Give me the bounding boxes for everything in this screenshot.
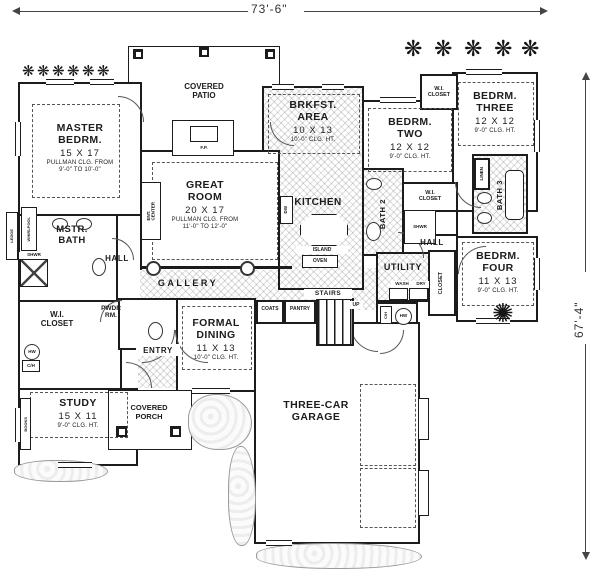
floor-plan: F.P. MASTER BEDRM. 15 X 17 PULLMAN CLG. … bbox=[0, 0, 600, 579]
shrub-icon: ❋ bbox=[521, 38, 539, 60]
shrub-icon: ❋ bbox=[97, 64, 110, 79]
stairs-label: STAIRS bbox=[304, 289, 352, 299]
window bbox=[266, 540, 292, 546]
rock-bed bbox=[256, 543, 422, 569]
water-heater-closet: HW bbox=[24, 344, 40, 360]
dim-width-label: 73'-6" bbox=[251, 2, 288, 16]
dim-line-top bbox=[304, 11, 540, 12]
room-wi-closet-bed2 bbox=[402, 182, 458, 212]
ceiling-line-bed3 bbox=[458, 82, 534, 146]
window bbox=[322, 84, 344, 90]
shower-label-master: SHWR bbox=[19, 252, 49, 259]
dryer-label: DRY bbox=[413, 281, 429, 288]
column bbox=[146, 261, 161, 276]
island-label: ISLAND bbox=[296, 246, 348, 254]
shrub-icon: ❋ bbox=[37, 64, 50, 79]
dryer bbox=[409, 288, 428, 300]
flower-icon: ✺ bbox=[492, 300, 514, 326]
window bbox=[380, 97, 416, 103]
column bbox=[240, 261, 255, 276]
patio-post bbox=[199, 47, 209, 57]
garage-door-bay bbox=[360, 384, 416, 466]
patio-post bbox=[133, 49, 143, 59]
window bbox=[15, 408, 21, 442]
colonnade-line bbox=[140, 266, 292, 269]
toilet bbox=[366, 222, 381, 241]
bookshelf: BOOKS bbox=[20, 398, 31, 450]
plant-ledge: LEDGE bbox=[6, 212, 18, 260]
shrub-icon: ❋ bbox=[52, 64, 65, 79]
dim-line-right bbox=[585, 80, 586, 272]
porch-post bbox=[116, 426, 127, 437]
dim-arrow-up-icon bbox=[582, 72, 590, 80]
sink bbox=[477, 192, 492, 204]
ceiling-line-study bbox=[30, 392, 128, 438]
shrub-icon: ❋ bbox=[82, 64, 95, 79]
sink bbox=[52, 218, 68, 230]
room-closet-bed4 bbox=[428, 250, 456, 316]
window bbox=[466, 69, 502, 75]
shrub-icon: ❋ bbox=[22, 64, 35, 79]
dim-line-top bbox=[20, 11, 248, 12]
kitchen-island bbox=[300, 214, 348, 246]
dim-arrow-down-icon bbox=[582, 552, 590, 560]
shrub-icon: ❋ bbox=[67, 64, 80, 79]
water-heater-utility: HW bbox=[395, 308, 412, 325]
ceiling-line-great-room bbox=[152, 162, 278, 260]
window bbox=[534, 258, 540, 290]
shrub-icon: ❋ bbox=[404, 38, 422, 60]
shower-bath2: SHWR bbox=[404, 210, 436, 244]
sink bbox=[366, 178, 382, 190]
sink bbox=[76, 218, 92, 230]
washer-label: WASH bbox=[391, 281, 413, 288]
rock-bed bbox=[188, 394, 252, 450]
sink bbox=[477, 212, 492, 224]
door-master-bath bbox=[112, 238, 134, 260]
shrub-icon: ❋ bbox=[434, 38, 452, 60]
window bbox=[58, 462, 92, 468]
wall-oven: OVEN bbox=[302, 255, 338, 268]
bathtub bbox=[505, 170, 524, 220]
chase-closet: C/H bbox=[22, 360, 40, 372]
patio-post bbox=[265, 49, 275, 59]
dim-arrow-right-icon bbox=[540, 7, 548, 15]
shower-master bbox=[20, 259, 48, 287]
garage-door-bay bbox=[360, 468, 416, 528]
porch-post bbox=[170, 426, 181, 437]
window bbox=[272, 84, 294, 90]
fireplace-firebox bbox=[190, 126, 218, 142]
window bbox=[534, 120, 540, 152]
fireplace-label: F.P. bbox=[192, 144, 216, 153]
washer bbox=[389, 288, 408, 300]
shrub-icon: ❋ bbox=[464, 38, 482, 60]
whirlpool-tub: WHIRLPOOL bbox=[21, 207, 37, 251]
dim-arrow-left-icon bbox=[12, 7, 20, 15]
shrub-icon: ❋ bbox=[494, 38, 512, 60]
chase-utility: C/H bbox=[380, 306, 392, 324]
ceiling-line-master bbox=[32, 104, 120, 198]
window bbox=[15, 122, 21, 156]
rock-bed bbox=[228, 446, 256, 546]
room-wi-closet-bed3 bbox=[420, 74, 458, 110]
entertainment-center: ENT. CENTER bbox=[141, 182, 161, 240]
window bbox=[192, 388, 230, 394]
ceiling-line-bed2 bbox=[368, 108, 452, 172]
garage-door-panel bbox=[418, 470, 429, 516]
garage-door-panel bbox=[418, 398, 429, 440]
toilet bbox=[92, 258, 106, 276]
toilet bbox=[148, 322, 163, 340]
dishwasher: DW bbox=[280, 196, 293, 224]
dim-height-label: 67'-4" bbox=[572, 278, 586, 338]
dim-line-right bbox=[585, 344, 586, 552]
stairs-up-label: UP bbox=[349, 301, 363, 309]
